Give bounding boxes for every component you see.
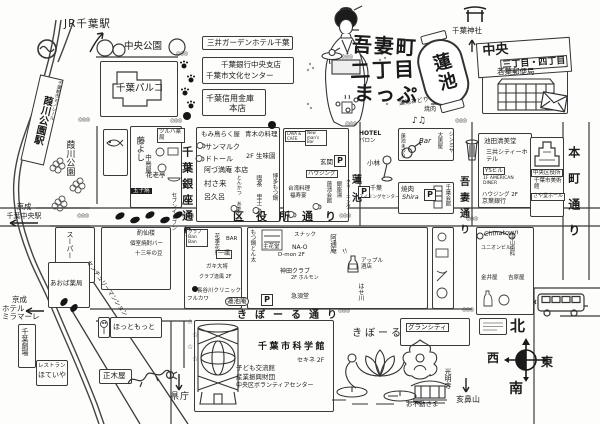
snack-label: スナック	[294, 232, 316, 238]
star-mark: ☆	[192, 331, 198, 339]
shukado-label: 主花堂	[263, 244, 280, 250]
crossing-mark: ◎◎◎	[182, 213, 193, 219]
rokuro-label: 呂久呂	[204, 193, 225, 201]
envelope-icon	[538, 88, 572, 117]
fukuju-label: 福寿宴	[290, 193, 307, 199]
yoshikawa-park-label: 葭川公園	[64, 140, 74, 176]
kanai-label: 金井屋	[481, 275, 498, 281]
kobayashi-label: 小林	[367, 160, 380, 167]
crossing-mark: ◎◎◎	[455, 118, 466, 124]
bus-icon	[534, 286, 592, 318]
street-azuma-label: 吾妻通り	[457, 176, 469, 240]
cleaning-label: クリーニング	[344, 179, 350, 209]
super-label: スーパー	[66, 231, 74, 259]
sanmaruku-label: サンマルク	[205, 143, 240, 151]
cup-doodle-icon	[195, 154, 205, 163]
hirayama-dental-label: 平山歯科	[508, 234, 514, 256]
paw-prints-icon	[178, 60, 200, 120]
science-museum-label: 千葉市科学館	[258, 342, 327, 352]
newmans-bar-label: New man's Bar	[305, 130, 327, 146]
taiwan-ryori-label: 台湾料理	[288, 186, 310, 192]
monorail-logo-icon	[36, 38, 58, 60]
star-mark: ☆	[187, 343, 193, 351]
tsuruha-label: ツルハ薬局	[157, 128, 185, 143]
furukawa-label: フルカワ	[187, 296, 209, 302]
keisei-chuo-l2: 千葉中央駅	[2, 212, 46, 220]
parking-sign: P	[334, 155, 346, 167]
hotto-motto-label: ほっともっと	[113, 323, 155, 331]
ikeda-label: 池田清美堂	[484, 138, 517, 145]
kencho-label: 県庁	[170, 392, 190, 402]
ward-office-building-icon	[531, 138, 563, 168]
atsuan-label: 阿通庵	[328, 234, 335, 254]
keiyo-bank-label: 京葉銀行	[482, 199, 506, 206]
face-doodle-icon	[99, 319, 109, 337]
shop-doodles-icon	[433, 229, 453, 307]
crossing-mark: ◎◎◎	[345, 121, 356, 127]
sake-shop-label: アップル酒店	[361, 258, 387, 271]
chiba-kaikan-label: 千葉会館	[444, 184, 450, 206]
gaki-taisho-label: ガキ大将	[206, 264, 228, 270]
block-shakusen	[101, 227, 171, 290]
crossing-mark: ◎◎◎	[338, 308, 349, 314]
parking-sign: P	[424, 189, 436, 201]
crossing-mark: ◎◎◎	[339, 213, 350, 219]
hasegawa-clinic-label: 長谷川クリニック	[197, 288, 241, 294]
momidori-label: もみ鳥らく屋	[201, 131, 240, 138]
bunka-center-label: 千葉市文化センター	[206, 72, 274, 81]
genkan-label: 玄関	[320, 159, 333, 166]
nao-label: NA-O	[292, 245, 308, 252]
hotel-label: HOTEL	[359, 131, 381, 138]
motsunabe-label: 博多もつ鍋	[271, 173, 277, 201]
ward-office-label: 中央区役所	[531, 169, 563, 177]
chuo-banner-line1: 中央	[482, 43, 509, 60]
compass-south-label: 南	[509, 381, 523, 397]
star-mark: ☆	[187, 318, 193, 326]
star-mark: ☆	[192, 355, 198, 363]
torii-icon	[462, 4, 488, 24]
map-title-line3: まっぷ	[354, 77, 420, 108]
parco-label: 千葉パルコ	[116, 84, 163, 95]
dmon-label: D-mon 2F	[278, 252, 305, 258]
swim-center-label1: 千葉	[370, 186, 382, 193]
ichifu-label: 一颯	[216, 250, 232, 259]
grancity-label: グランシティ	[406, 323, 449, 332]
shakusen-label3: 十三年の豆	[135, 251, 163, 257]
ys-building-label: YSビル	[483, 167, 505, 175]
bottle-doodles-icon	[482, 288, 512, 308]
sake-bottle-icon	[347, 252, 359, 274]
ippu-club-label: クラブ逸風 2F	[199, 275, 232, 281]
lava-cafe-label: LAVA & CAFE	[285, 131, 306, 142]
shira-label: Shira	[402, 194, 419, 201]
street-kibore-label: きぼーる通り	[237, 310, 345, 322]
travel-box-lines-icon	[482, 321, 504, 332]
bar2-label: BAR	[226, 236, 237, 242]
seimien-label: 2F 生味園	[246, 153, 275, 160]
crossing-mark: ◎◎◎	[78, 117, 89, 123]
azumacho-hand-drawn-map: 吾妻町 二丁目 まっぷ 蓮池 蓮池おどり 焼肉 JR千葉駅 中央公園 千葉パルコ…	[0, 0, 600, 424]
karaoke-mic-icon	[379, 155, 395, 183]
shrine-arrow	[469, 40, 475, 52]
american-diner-label: 1F AMERICAN DINER	[483, 176, 529, 186]
sangyo-label: 産業振興財団	[236, 374, 275, 381]
fudo-label: お不動さま	[406, 401, 439, 408]
crossing-mark: ◎◎◎	[466, 216, 477, 222]
bar-label: Bar	[419, 137, 431, 145]
tonkatsu-label: とんかつ あさくら	[235, 175, 241, 221]
keisei-chuo-station-label: 京成 千葉中央駅	[2, 203, 46, 220]
chiba-shrine-label: 千葉神社	[452, 27, 482, 36]
kiboru-label: きぼーる	[352, 328, 404, 340]
street-honcho-label: 本町通り	[566, 146, 580, 250]
inohana-arrow	[463, 378, 469, 392]
compass-north-label: 北	[510, 318, 525, 335]
crossing-mark: ◎◎◎	[462, 307, 473, 313]
street-ginza-label: 千葉銀座通り	[180, 146, 193, 242]
wakaba-post-office-label: 若葉郵便局	[497, 68, 535, 77]
chiba-gekijo-label: 千葉劇場	[21, 328, 29, 356]
hotel-paron-label: パロン	[359, 138, 376, 144]
housing-label: ハウジング	[306, 170, 338, 178]
music-notes: ♪♫	[412, 116, 426, 126]
karotei-label: 花老亭	[146, 172, 166, 179]
crossing-mark: ◎◎◎	[170, 118, 181, 124]
daikoku-label: 大黒屋	[436, 132, 442, 149]
shinmiya-label: シンミヤ	[447, 131, 453, 153]
jr-chiba-station-label: JR千葉駅	[64, 18, 111, 30]
seven-eleven-label: セブンイレブン	[170, 192, 176, 231]
aoki-label: 青木の料理	[245, 131, 278, 138]
sankyo-hotel-label: 三共シティーホテル	[486, 150, 530, 164]
hoteiya-label: ほていや	[38, 371, 66, 379]
hasekawa-label: はせ川	[356, 283, 363, 301]
komyoji-label: 光明寺	[444, 368, 452, 389]
hasuikean-label: 蓮池庵	[225, 297, 249, 306]
yoshiwara-label: 吉原屋	[508, 275, 525, 281]
art-museum-label: 千葉市美術館	[534, 178, 564, 191]
mitsui-hotel-label: 三井ガーデンホテル千葉	[207, 39, 290, 48]
chuo-park-label: 中央公園	[124, 42, 162, 53]
ink-blob	[268, 121, 276, 129]
tamagoyaki-label: 玉子焼	[131, 188, 152, 194]
kissa-label: 喫茶 里土	[254, 175, 261, 206]
crossing-mark: ◎◎◎	[77, 213, 88, 219]
shop-doodles-icon	[154, 146, 182, 190]
union-building-label: ユニオンビル	[481, 246, 511, 252]
dotor-label: ドトール	[205, 155, 233, 163]
hasuike-matsuri-label: 蓮池まつり	[399, 133, 405, 158]
kencho-arrow	[176, 374, 182, 390]
masakiya-label: 正木屋	[103, 372, 126, 381]
shinkin-label: 千葉信用金庫	[206, 94, 254, 103]
sekine-label: セキネ 2F	[297, 358, 324, 365]
trash-can-icon	[464, 138, 480, 162]
lantern-text: 蓮池	[425, 50, 460, 95]
block-fish-shop	[103, 129, 128, 176]
dragon-icon	[122, 362, 176, 394]
restaurant-label: レストラン	[38, 363, 66, 369]
sayado-hall-label: さや堂ホール	[531, 193, 565, 201]
keisei-arrow	[10, 220, 38, 226]
murasaki-label: 村さ来	[204, 180, 227, 189]
aoba-pharmacy-label: あおば薬局	[50, 280, 83, 287]
horumon-label: 2F ホルモン	[291, 276, 319, 282]
compass-west-label: 西	[487, 352, 499, 366]
street-kuyakusho-label: 区役所通り	[233, 211, 348, 224]
miramare-hotel-label: 京成 ホテル ミラマーレ	[2, 296, 40, 322]
miramare-l3: ミラマーレ	[2, 313, 40, 322]
azumaan-label: 阿づ満庵 本店	[204, 166, 248, 174]
banban-club-label: クラブ Ban Ban	[186, 229, 208, 247]
fish-icon	[105, 138, 123, 148]
compass-east-label: 東	[541, 356, 553, 370]
shinkin-honten-label: 本店	[229, 105, 246, 115]
inohana-label: 亥鼻山	[456, 395, 480, 404]
volunteer-center-label: 中央区ボランティアセンター	[236, 383, 314, 390]
crossing-mark: ◎◎◎	[176, 51, 187, 57]
keisei-chuo-l1: 京成	[2, 203, 46, 212]
hasuike-kaikan-label: 蓮池会館	[325, 181, 331, 203]
kyusudo-label: 急須堂	[291, 294, 309, 301]
swim-center-label2: スイミングセンター	[359, 195, 400, 200]
motsunabe-tonta-label: もつ鍋とん太	[249, 229, 255, 262]
ginzayu-label: 銀座湯	[335, 181, 341, 198]
parking-sign: P	[261, 294, 273, 306]
shakusen-label2: 個室焼酎バー	[130, 241, 163, 247]
chiba-bank-label: 千葉銀行中央支店	[221, 61, 281, 70]
shoe-footprints-icon	[58, 296, 82, 314]
shakusen-label1: 酌仙楼	[137, 231, 155, 238]
ink-blob	[192, 286, 198, 292]
kodomo-label: 子ども交流館	[236, 365, 275, 372]
